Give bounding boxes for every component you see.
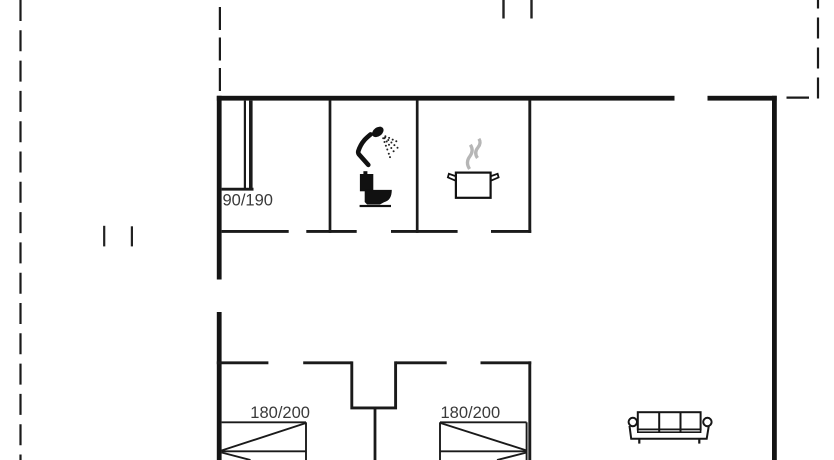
svg-text:90/190: 90/190 — [223, 192, 273, 210]
svg-text:180/200: 180/200 — [250, 404, 310, 422]
svg-text:180/200: 180/200 — [441, 404, 501, 422]
